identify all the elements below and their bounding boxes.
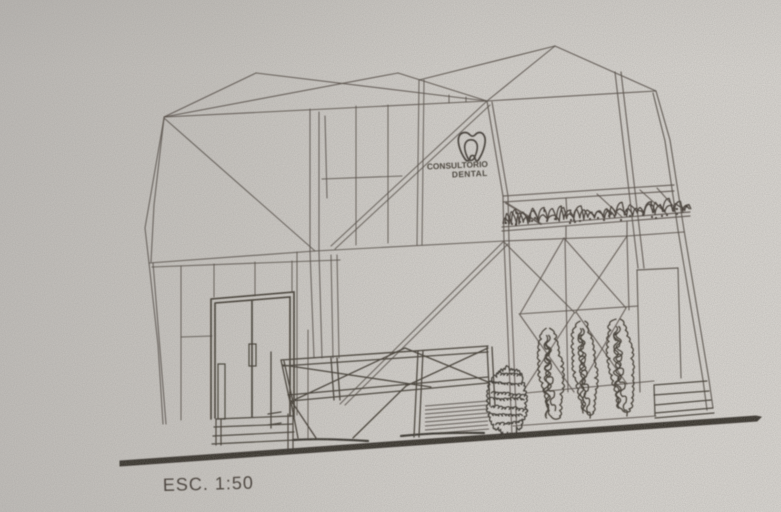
svg-text:ESC. 1:50: ESC. 1:50 [163, 473, 255, 495]
svg-text:DENTAL: DENTAL [452, 168, 488, 180]
